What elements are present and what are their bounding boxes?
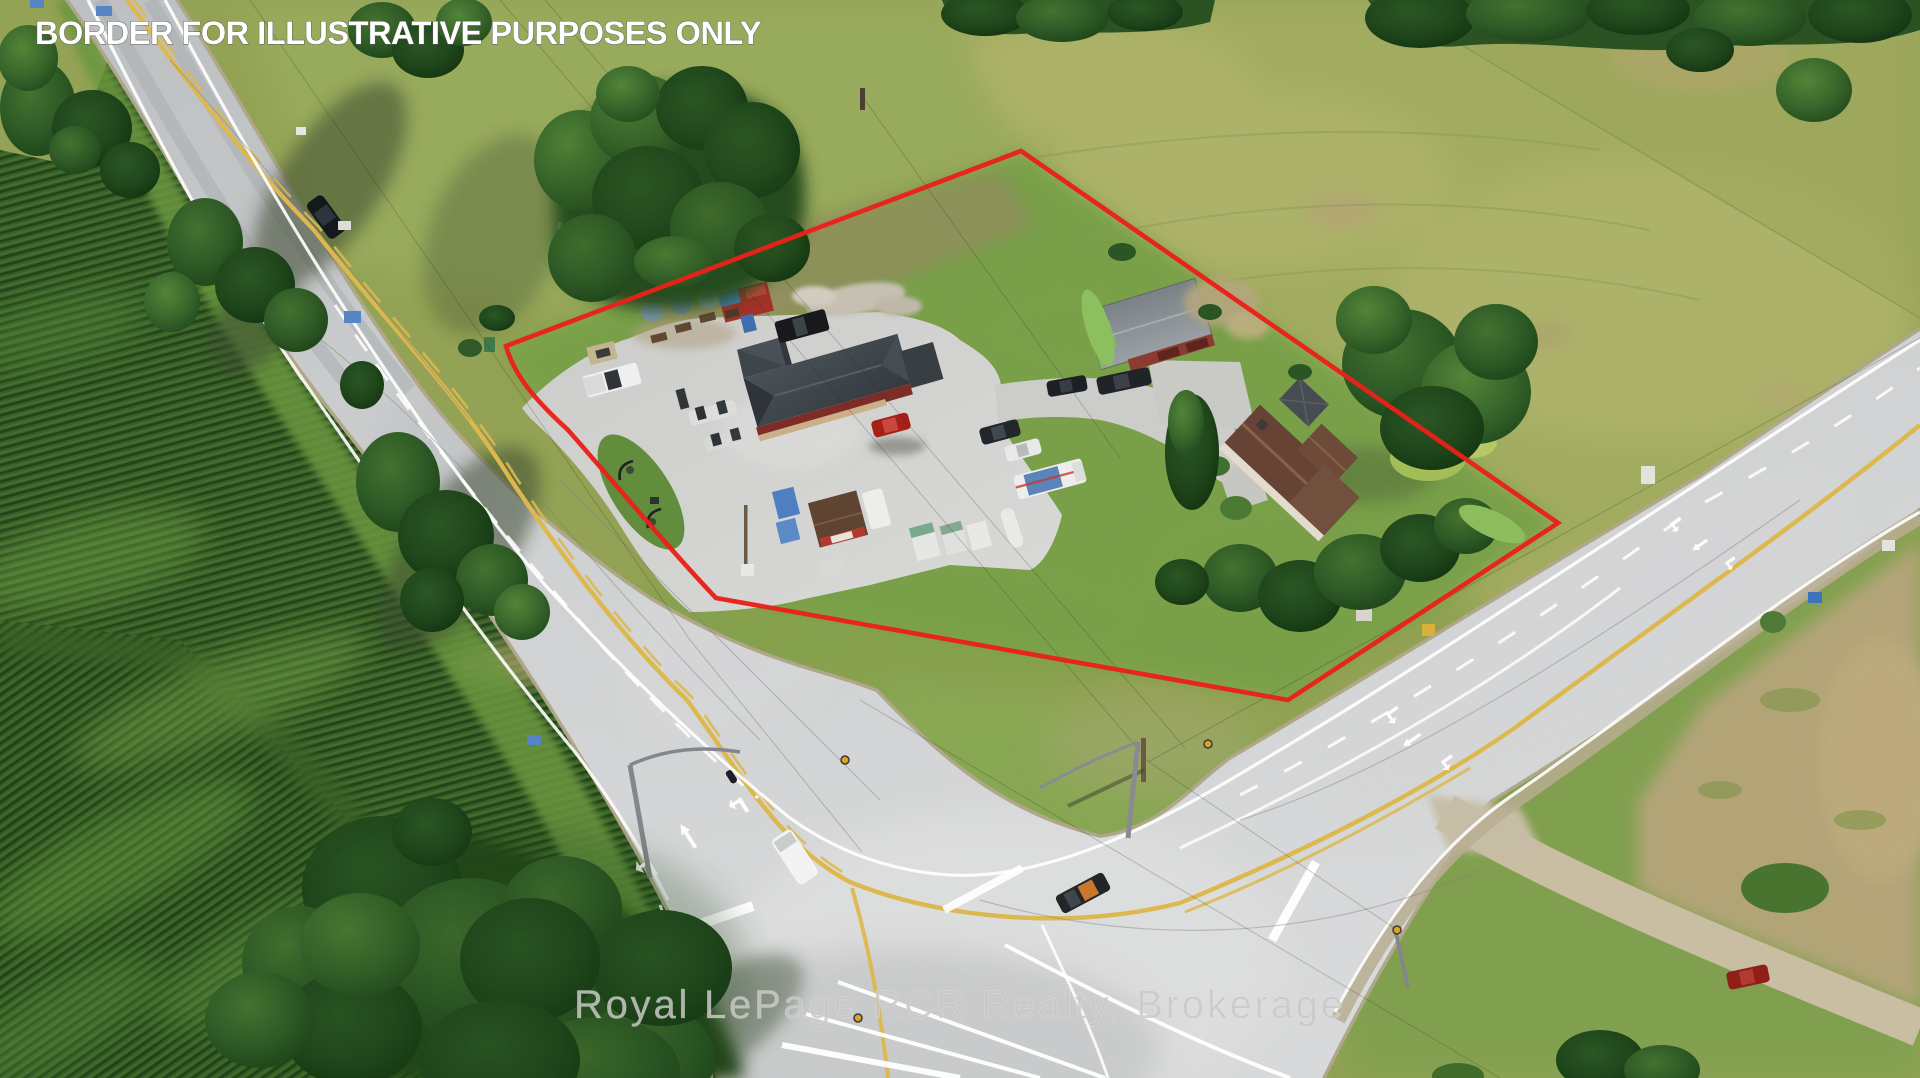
svg-text:BORDER FOR ILLUSTRATIVE PURPOS: BORDER FOR ILLUSTRATIVE PURPOSES ONLY <box>35 15 762 51</box>
